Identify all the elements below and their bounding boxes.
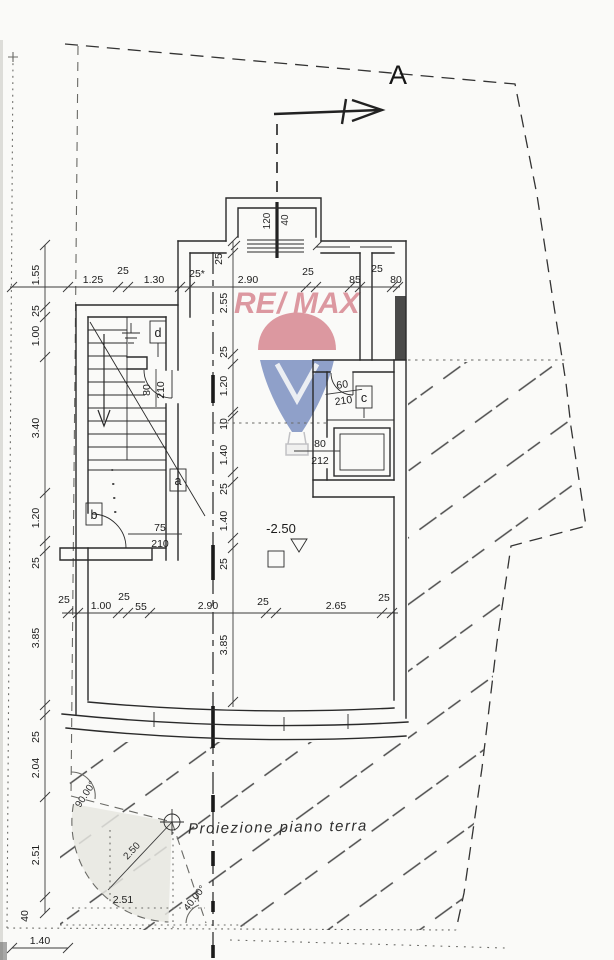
drain-square [268, 551, 284, 567]
bay-depth-label: 40 [280, 214, 291, 226]
remax-watermark: RE / MAX [234, 287, 362, 455]
dim-center-2: 1.20 [218, 376, 230, 397]
dim-left-1: 25 [30, 305, 42, 317]
bottom-wall [62, 702, 408, 740]
elevator-shaft [334, 428, 390, 476]
dim-left-3: 3.40 [30, 418, 42, 439]
dim-bottom-6: 2.65 [326, 600, 347, 612]
door-c-height: 210 [334, 394, 353, 408]
dim-left-4: 1.20 [30, 508, 42, 529]
dim-bottom-4: 2.90 [198, 600, 219, 612]
chord-label: 2.51 [113, 894, 134, 906]
dim-top-1: 25 [117, 265, 129, 277]
dim-bottom-7: 25 [378, 592, 390, 604]
dim-bottom-0: 25 [58, 594, 70, 606]
door-stair-height: 210 [155, 381, 167, 399]
dim-top-6: 85 [349, 274, 361, 286]
remax-wordmark-re: RE [234, 287, 277, 320]
dim-top-8: 80 [390, 274, 402, 286]
boundary-corner-mark [8, 52, 18, 62]
dim-left-2: 1.00 [30, 326, 42, 347]
dim-top-5: 25 [302, 266, 314, 278]
dim-top-7: 25 [371, 263, 383, 275]
door-shaft-height: 212 [311, 455, 329, 467]
dim-bottom-1: 1.00 [91, 600, 112, 612]
scan-edge-artifacts [0, 40, 7, 960]
door-stair-width: 80 [141, 384, 153, 396]
dim-left-5: 25 [30, 557, 42, 569]
dim-bottom-2: 25 [118, 591, 130, 603]
section-arrow-icon [274, 99, 382, 124]
door-stair: 80 210 [141, 369, 172, 407]
room-label-b: b [91, 508, 98, 522]
dim-center-0: 2.55 [218, 293, 230, 314]
room-label-d: d [155, 326, 162, 340]
wall-poche [395, 296, 406, 360]
door-c-width: 60 [336, 378, 349, 392]
dim-center-6: 1.40 [218, 511, 230, 532]
floor-plan-drawing: 90.00° 40.00° 2.50 2.51 RE / MAX A [0, 0, 614, 960]
dim-top-0: 1.25 [83, 274, 104, 286]
stair-direction-arrow [98, 334, 110, 426]
dim-center-3: 10 [218, 418, 230, 430]
bay-width-label: 120 [262, 212, 273, 229]
dim-center-4: 1.40 [218, 445, 230, 466]
door-shaft-width: 80 [314, 438, 326, 450]
dim-left-0: 1.55 [30, 265, 42, 286]
section-marker: A [274, 60, 407, 258]
dim-center-5: 25 [218, 483, 230, 495]
level-marker: -2.50 [266, 521, 307, 567]
level-triangle-icon [291, 539, 307, 552]
staircase [88, 317, 205, 516]
balloon-icon [258, 313, 336, 456]
dim-wall-top: 25 [213, 253, 225, 265]
dim-top-4: 2.90 [238, 274, 259, 286]
dim-bottom-5: 25 [257, 596, 269, 608]
door-room-b: 75 210 [92, 514, 182, 550]
bay-window-walls [226, 198, 321, 241]
dim-left-8: 2.04 [30, 758, 42, 779]
ground-symbol-icon [122, 323, 140, 343]
dim-top-2: 1.30 [144, 274, 165, 286]
stair-dots [112, 470, 116, 512]
door-b-width: 75 [154, 522, 166, 534]
dim-center-7: 25 [218, 558, 230, 570]
door-b-height: 210 [151, 538, 169, 550]
dim-center-1: 25 [218, 346, 230, 358]
dim-center-8: 3.85 [218, 635, 230, 656]
dim-bottom-3: 55 [135, 601, 147, 613]
projection-note: Proiezione piano terra [188, 817, 368, 837]
room-label-c: c [361, 391, 367, 405]
section-label: A [389, 60, 407, 90]
dim-left-6: 3.85 [30, 628, 42, 649]
level-value: -2.50 [266, 521, 296, 536]
dim-left-9: 2.51 [30, 845, 42, 866]
dim-left-bottom: 1.40 [30, 935, 51, 947]
dim-left-10: 40 [19, 910, 31, 922]
floor-plan-sheet: 90.00° 40.00° 2.50 2.51 RE / MAX A [0, 0, 614, 960]
dim-left-7: 25 [30, 731, 42, 743]
dim-top-3: 25* [189, 268, 205, 280]
room-label-a: a [175, 474, 182, 488]
